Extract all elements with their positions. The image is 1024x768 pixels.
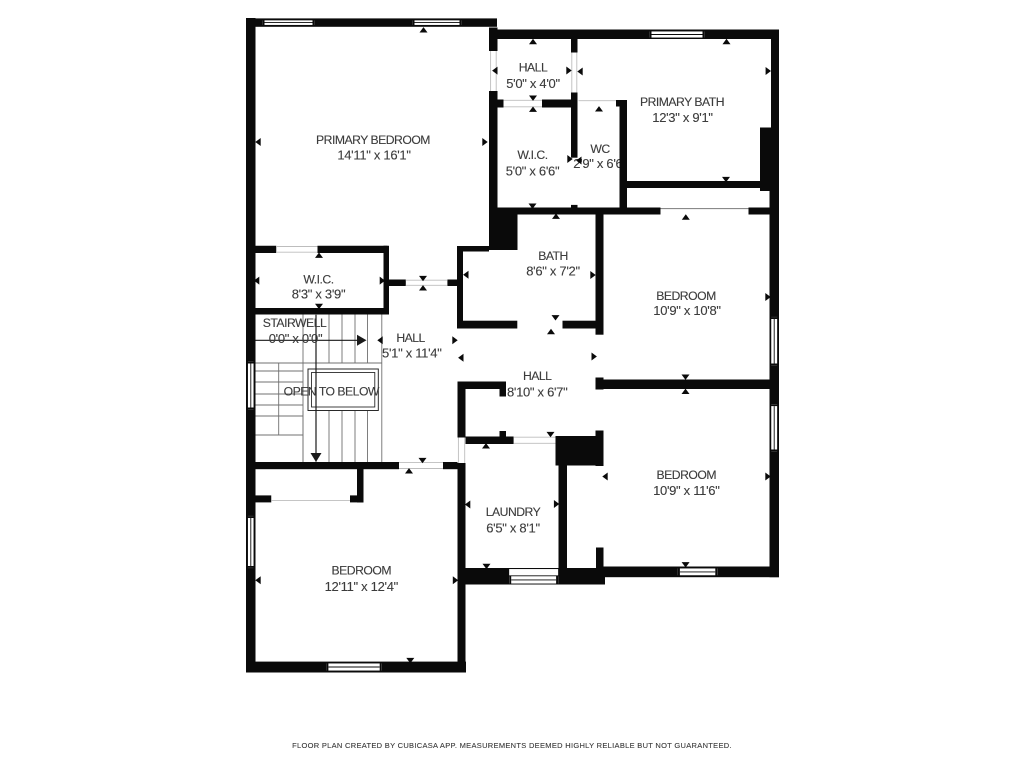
svg-text:LAUNDRY: LAUNDRY xyxy=(486,505,541,519)
svg-text:0'0" x 0'0": 0'0" x 0'0" xyxy=(269,331,323,346)
svg-text:HALL: HALL xyxy=(519,60,548,74)
svg-text:STAIRWELL: STAIRWELL xyxy=(263,316,327,330)
svg-text:BEDROOM: BEDROOM xyxy=(657,468,717,482)
svg-text:5'1" x 11'4": 5'1" x 11'4" xyxy=(382,346,442,361)
svg-text:W.I.C.: W.I.C. xyxy=(303,272,333,286)
svg-text:BEDROOM: BEDROOM xyxy=(332,563,392,577)
svg-text:W.I.C.: W.I.C. xyxy=(517,148,547,162)
svg-text:PRIMARY BEDROOM: PRIMARY BEDROOM xyxy=(316,133,430,147)
svg-text:HALL: HALL xyxy=(396,331,425,345)
svg-text:8'10" x 6'7": 8'10" x 6'7" xyxy=(507,385,568,400)
svg-text:BEDROOM: BEDROOM xyxy=(656,289,716,303)
svg-text:14'11" x 16'1": 14'11" x 16'1" xyxy=(337,148,411,163)
svg-text:12'3" x 9'1": 12'3" x 9'1" xyxy=(652,110,713,125)
svg-text:BATH: BATH xyxy=(538,249,568,263)
svg-text:5'0" x 4'0": 5'0" x 4'0" xyxy=(506,76,560,91)
svg-text:10'9" x 11'6": 10'9" x 11'6" xyxy=(653,483,720,498)
svg-text:6'5" x 8'1": 6'5" x 8'1" xyxy=(486,521,540,536)
svg-text:PRIMARY BATH: PRIMARY BATH xyxy=(640,95,724,109)
svg-text:5'0" x 6'6": 5'0" x 6'6" xyxy=(506,164,560,179)
svg-text:WC: WC xyxy=(590,142,610,156)
svg-text:8'6" x 7'2": 8'6" x 7'2" xyxy=(526,264,580,279)
svg-text:12'11" x 12'4": 12'11" x 12'4" xyxy=(325,579,399,594)
svg-text:OPEN TO BELOW: OPEN TO BELOW xyxy=(284,384,380,398)
svg-text:HALL: HALL xyxy=(523,369,552,383)
svg-text:FLOOR PLAN CREATED BY CUBICASA: FLOOR PLAN CREATED BY CUBICASA APP. MEAS… xyxy=(292,741,732,750)
svg-text:8'3" x 3'9": 8'3" x 3'9" xyxy=(292,287,346,302)
svg-text:10'9" x 10'8": 10'9" x 10'8" xyxy=(653,303,721,318)
